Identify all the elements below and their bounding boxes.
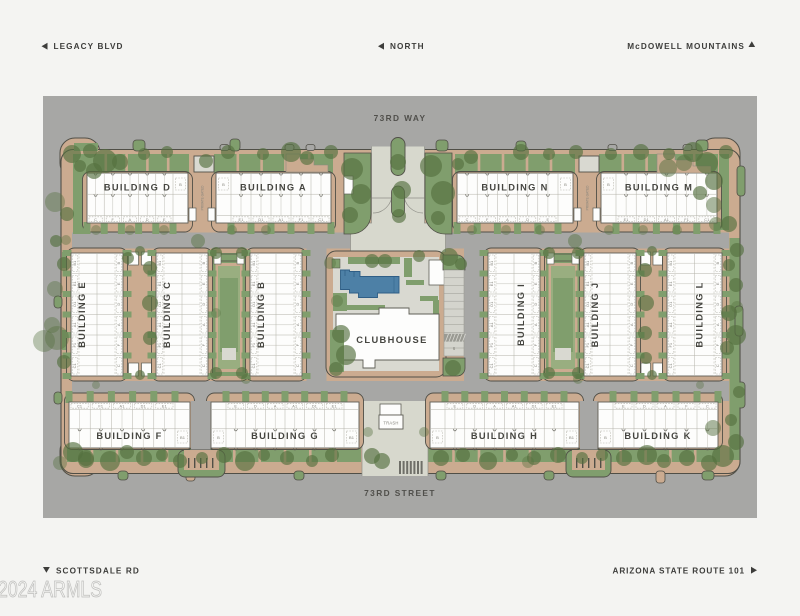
svg-text:73RD STREET: 73RD STREET xyxy=(364,488,436,498)
svg-text:NORTH: NORTH xyxy=(390,42,425,51)
svg-text:E1: E1 xyxy=(552,404,557,408)
svg-text:D1: D1 xyxy=(532,404,537,408)
svg-text:C: C xyxy=(295,364,300,367)
svg-text:F1: F1 xyxy=(684,218,689,222)
svg-text:B1: B1 xyxy=(72,260,77,266)
svg-text:C: C xyxy=(629,364,634,367)
svg-text:ARIZONA STATE ROUTE 101: ARIZONA STATE ROUTE 101 xyxy=(613,567,745,576)
svg-text:B: B xyxy=(116,262,121,265)
svg-text:BUILDING A: BUILDING A xyxy=(240,183,307,193)
svg-text:B: B xyxy=(604,435,607,440)
svg-text:E1: E1 xyxy=(489,281,494,287)
svg-text:C1: C1 xyxy=(704,218,709,222)
svg-text:C1: C1 xyxy=(157,362,162,368)
svg-text:C: C xyxy=(201,364,206,367)
svg-text:BUILDING E: BUILDING E xyxy=(77,281,87,348)
svg-text:E1: E1 xyxy=(238,218,243,222)
svg-text:BUILDING H: BUILDING H xyxy=(471,431,538,441)
svg-text:BUILDING M: BUILDING M xyxy=(625,183,693,193)
svg-text:E1: E1 xyxy=(624,218,629,222)
svg-text:BUILDING I: BUILDING I xyxy=(516,283,526,346)
svg-text:C: C xyxy=(706,404,709,408)
svg-text:PRIVATE GATED: PRIVATE GATED xyxy=(201,185,205,210)
svg-text:A: A xyxy=(629,323,634,326)
svg-text:C1: C1 xyxy=(585,362,590,368)
svg-text:A: A xyxy=(715,323,720,326)
svg-text:B: B xyxy=(533,262,538,265)
svg-text:BUILDING L: BUILDING L xyxy=(695,281,705,347)
svg-text:E: E xyxy=(547,218,550,222)
svg-text:B: B xyxy=(715,262,720,265)
svg-text:F1: F1 xyxy=(299,218,304,222)
svg-text:A: A xyxy=(274,404,277,408)
svg-text:SCOTTSDALE RD: SCOTTSDALE RD xyxy=(56,567,140,576)
svg-text:D: D xyxy=(533,303,538,306)
svg-text:BUILDING B: BUILDING B xyxy=(256,281,266,348)
svg-text:A1: A1 xyxy=(664,218,669,222)
svg-text:E: E xyxy=(454,404,457,408)
svg-text:A: A xyxy=(506,218,509,222)
svg-text:C1: C1 xyxy=(77,404,82,408)
svg-text:C1: C1 xyxy=(251,362,256,368)
svg-text:A: A xyxy=(295,323,300,326)
svg-text:C1: C1 xyxy=(489,362,494,368)
svg-text:D: D xyxy=(295,303,300,306)
svg-text:D1: D1 xyxy=(644,218,649,222)
svg-text:C1: C1 xyxy=(668,362,673,368)
svg-text:BUILDING D: BUILDING D xyxy=(104,183,171,193)
svg-text:A1: A1 xyxy=(668,322,673,328)
svg-text:E: E xyxy=(715,282,720,285)
svg-text:E: E xyxy=(533,282,538,285)
svg-text:D: D xyxy=(254,404,257,408)
svg-text:D1: D1 xyxy=(668,301,673,307)
svg-text:B: B xyxy=(222,182,225,187)
svg-text:A: A xyxy=(201,323,206,326)
svg-text:C: C xyxy=(715,364,720,367)
svg-text:C1: C1 xyxy=(72,362,77,368)
svg-text:B1: B1 xyxy=(157,260,162,266)
svg-text:E: E xyxy=(622,404,625,408)
svg-text:D: D xyxy=(526,218,529,222)
svg-text:E1: E1 xyxy=(162,404,167,408)
svg-text:D1: D1 xyxy=(258,218,263,222)
svg-text:LEGACY BLVD: LEGACY BLVD xyxy=(54,42,124,51)
svg-text:BUILDING K: BUILDING K xyxy=(624,431,691,441)
svg-text:CLUBHOUSE: CLUBHOUSE xyxy=(356,335,427,345)
svg-text:A1: A1 xyxy=(278,218,283,222)
svg-text:C: C xyxy=(466,218,469,222)
svg-text:A1: A1 xyxy=(292,404,297,408)
svg-text:E: E xyxy=(295,282,300,285)
svg-text:D: D xyxy=(201,303,206,306)
svg-text:D: D xyxy=(473,404,476,408)
svg-text:F1: F1 xyxy=(668,342,673,347)
svg-text:B1: B1 xyxy=(668,260,673,266)
svg-text:B1: B1 xyxy=(251,260,256,266)
svg-text:D1: D1 xyxy=(312,404,317,408)
svg-text:B: B xyxy=(295,262,300,265)
svg-text:D1: D1 xyxy=(141,404,146,408)
svg-text:F1: F1 xyxy=(98,404,103,408)
svg-text:D: D xyxy=(116,303,121,306)
svg-text:TRASH: TRASH xyxy=(383,421,398,426)
svg-text:E: E xyxy=(163,218,166,222)
svg-text:C: C xyxy=(116,364,121,367)
svg-text:A: A xyxy=(129,218,132,222)
svg-text:C1: C1 xyxy=(318,218,323,222)
svg-text:D: D xyxy=(715,303,720,306)
svg-text:A1: A1 xyxy=(489,322,494,328)
svg-text:B1: B1 xyxy=(585,260,590,266)
svg-text:B: B xyxy=(201,262,206,265)
svg-text:D: D xyxy=(629,303,634,306)
svg-text:A: A xyxy=(533,323,538,326)
svg-text:E: E xyxy=(629,282,634,285)
svg-text:A: A xyxy=(116,323,121,326)
svg-text:E1: E1 xyxy=(332,404,337,408)
svg-text:73RD WAY: 73RD WAY xyxy=(374,113,427,123)
svg-text:E: E xyxy=(234,404,237,408)
svg-text:BUILDING F: BUILDING F xyxy=(96,431,162,441)
svg-text:B1: B1 xyxy=(489,260,494,266)
svg-text:B: B xyxy=(179,182,182,187)
svg-text:A1: A1 xyxy=(512,404,517,408)
svg-text:B: B xyxy=(607,182,610,187)
svg-text:BUILDING C: BUILDING C xyxy=(162,281,172,348)
svg-text:B: B xyxy=(217,435,220,440)
svg-text:PRIVATE GATED: PRIVATE GATED xyxy=(586,185,590,210)
svg-text:E: E xyxy=(201,282,206,285)
svg-text:D: D xyxy=(146,218,149,222)
svg-text:F1: F1 xyxy=(489,342,494,347)
svg-text:B: B xyxy=(629,262,634,265)
svg-text:A: A xyxy=(493,404,496,408)
svg-text:BUILDING G: BUILDING G xyxy=(251,431,319,441)
svg-text:E1: E1 xyxy=(668,281,673,287)
svg-text:A1: A1 xyxy=(119,404,124,408)
svg-text:B1: B1 xyxy=(349,435,355,440)
svg-text:2024 ARMLS: 2024 ARMLS xyxy=(0,576,102,602)
svg-text:McDOWELL MOUNTAINS: McDOWELL MOUNTAINS xyxy=(627,42,745,51)
svg-text:E: E xyxy=(116,282,121,285)
svg-text:BUILDING N: BUILDING N xyxy=(481,183,548,193)
svg-text:D: D xyxy=(643,404,646,408)
svg-text:C: C xyxy=(533,364,538,367)
svg-text:B1: B1 xyxy=(180,435,186,440)
svg-text:B1: B1 xyxy=(569,435,575,440)
svg-text:B: B xyxy=(564,182,567,187)
svg-text:B: B xyxy=(436,435,439,440)
svg-text:C: C xyxy=(94,218,97,222)
svg-text:A: A xyxy=(664,404,667,408)
svg-text:D1: D1 xyxy=(489,301,494,307)
svg-text:BUILDING J: BUILDING J xyxy=(590,282,600,348)
